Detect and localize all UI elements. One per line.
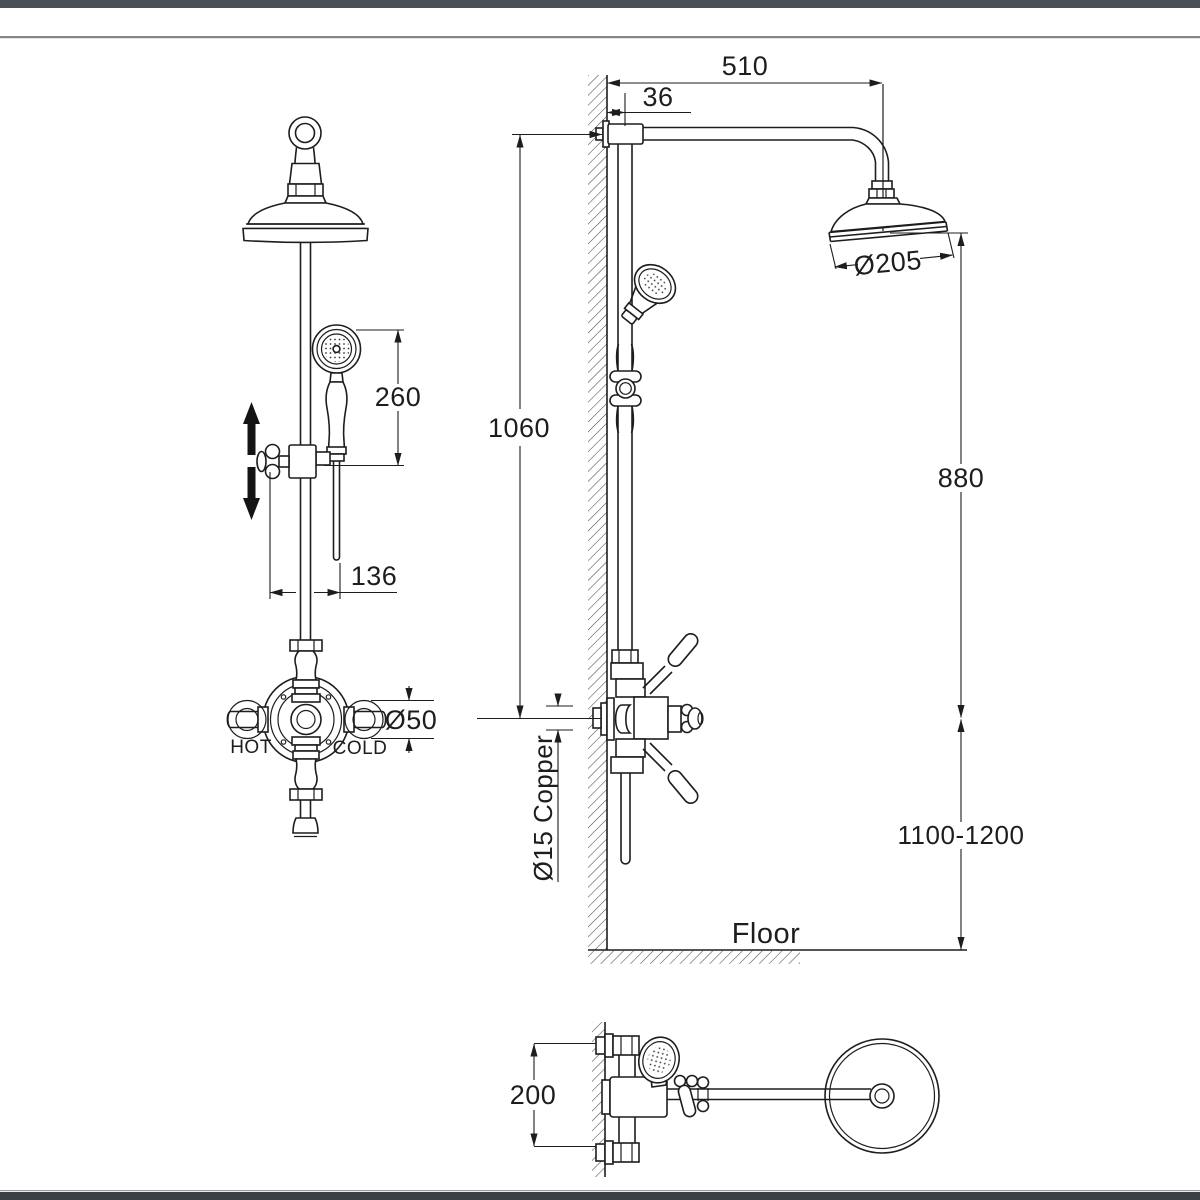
dim-label-260: 260 — [375, 382, 422, 412]
dim-label-510: 510 — [722, 51, 769, 81]
side-valve — [593, 631, 703, 864]
floor-section — [588, 950, 967, 964]
plan-lever-handle — [675, 1076, 698, 1119]
technical-drawing-page: 260 136 — [0, 0, 1200, 1200]
dim-label-1060: 1060 — [488, 413, 550, 443]
dim-1100-1200: 1100-1200 — [898, 720, 1025, 950]
slide-down-arrow-icon — [243, 467, 260, 520]
dim-label-36: 36 — [642, 82, 673, 112]
dim-1060: 1060 — [477, 135, 602, 719]
dim-label-diameter-50: Ø50 — [385, 705, 438, 735]
dim-label-200: 200 — [510, 1080, 557, 1110]
pipe-spec-label: Ø15 Copper — [528, 735, 558, 882]
bottom-bar — [0, 1192, 1200, 1200]
dim-880: 880 — [890, 233, 984, 718]
front-ceiling-bracket — [288, 117, 323, 196]
plan-view-drawing: 200 — [510, 1022, 939, 1177]
plan-slider-handle — [698, 1077, 709, 1112]
bottom-divider — [0, 1190, 1200, 1191]
side-view-drawing: Floor — [477, 51, 1024, 964]
dim-200: 200 — [510, 1044, 604, 1147]
front-shower-head — [243, 196, 368, 242]
dim-label-880: 880 — [938, 463, 985, 493]
header-divider — [0, 36, 1200, 38]
front-view-drawing: 260 136 — [227, 117, 437, 837]
hot-label: HOT — [230, 737, 272, 758]
dim-label-136: 136 — [351, 561, 398, 591]
front-riser-pipe — [301, 239, 311, 641]
side-shower-arm — [643, 128, 894, 199]
dim-label-diameter-205: Ø205 — [852, 245, 923, 281]
dim-label-1100-1200: 1100-1200 — [898, 820, 1025, 850]
cold-label: COLD — [333, 738, 388, 759]
wall-section — [588, 75, 607, 950]
slide-up-arrow-icon — [243, 402, 260, 455]
dim-510: 510 — [608, 51, 883, 83]
front-handshower — [313, 325, 361, 560]
front-slider-bracket — [257, 445, 330, 479]
side-handshower — [609, 257, 683, 334]
dim-diameter-15-copper: Ø15 Copper — [528, 694, 573, 882]
dim-36: 36 — [608, 82, 692, 126]
floor-label: Floor — [732, 918, 801, 950]
side-slider-handle — [610, 344, 641, 433]
top-bar — [0, 0, 1200, 8]
